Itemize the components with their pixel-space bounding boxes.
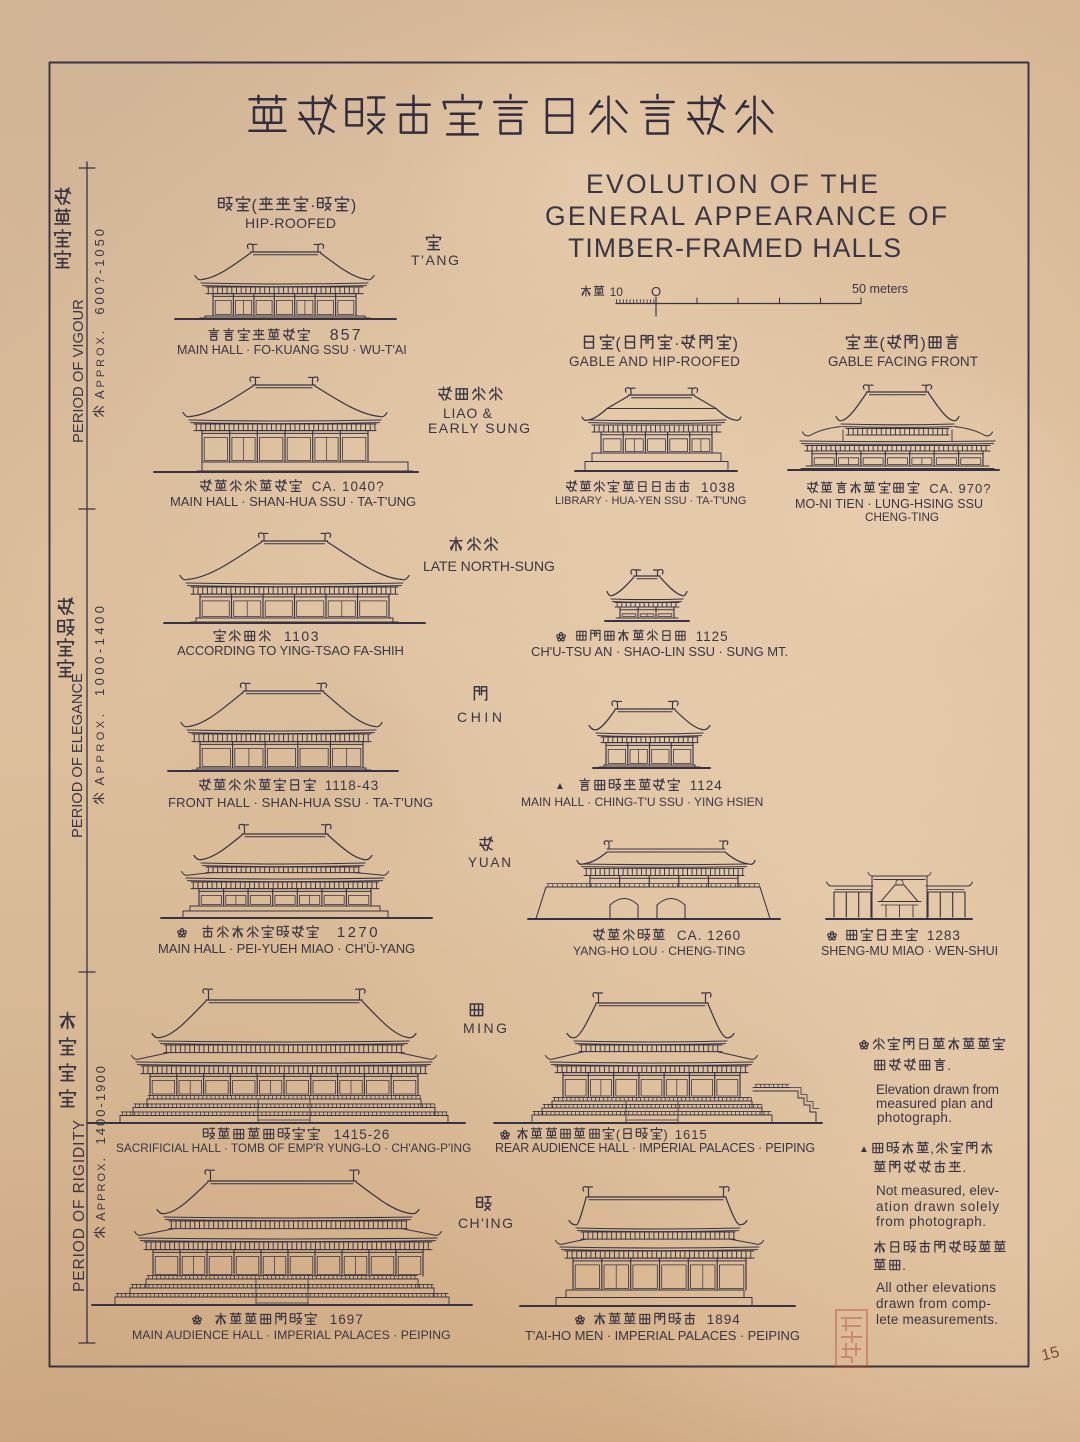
svg-text:15: 15 bbox=[1040, 1344, 1061, 1365]
